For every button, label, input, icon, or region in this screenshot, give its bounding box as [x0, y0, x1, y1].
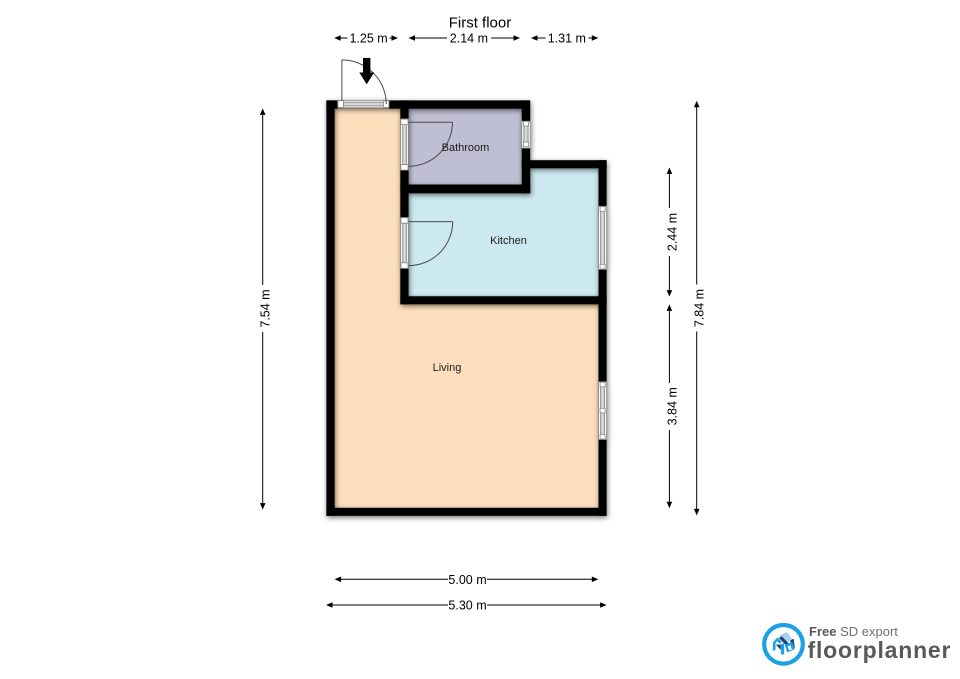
svg-text:2.14 m: 2.14 m [450, 32, 488, 46]
svg-text:1.31 m: 1.31 m [548, 32, 586, 46]
svg-text:1.25 m: 1.25 m [349, 32, 387, 46]
svg-text:7.84 m: 7.84 m [693, 289, 707, 327]
svg-text:7.54 m: 7.54 m [259, 289, 273, 327]
svg-text:floorplanner: floorplanner [808, 637, 952, 663]
svg-text:Kitchen: Kitchen [490, 235, 527, 247]
svg-text:Bathroom: Bathroom [442, 142, 490, 154]
svg-text:5.30 m: 5.30 m [448, 599, 486, 613]
svg-text:First floor: First floor [449, 15, 512, 32]
svg-text:3.84 m: 3.84 m [665, 387, 679, 425]
svg-text:2.44 m: 2.44 m [665, 213, 679, 251]
svg-text:Living: Living [433, 362, 462, 374]
svg-text:5.00 m: 5.00 m [448, 573, 486, 587]
